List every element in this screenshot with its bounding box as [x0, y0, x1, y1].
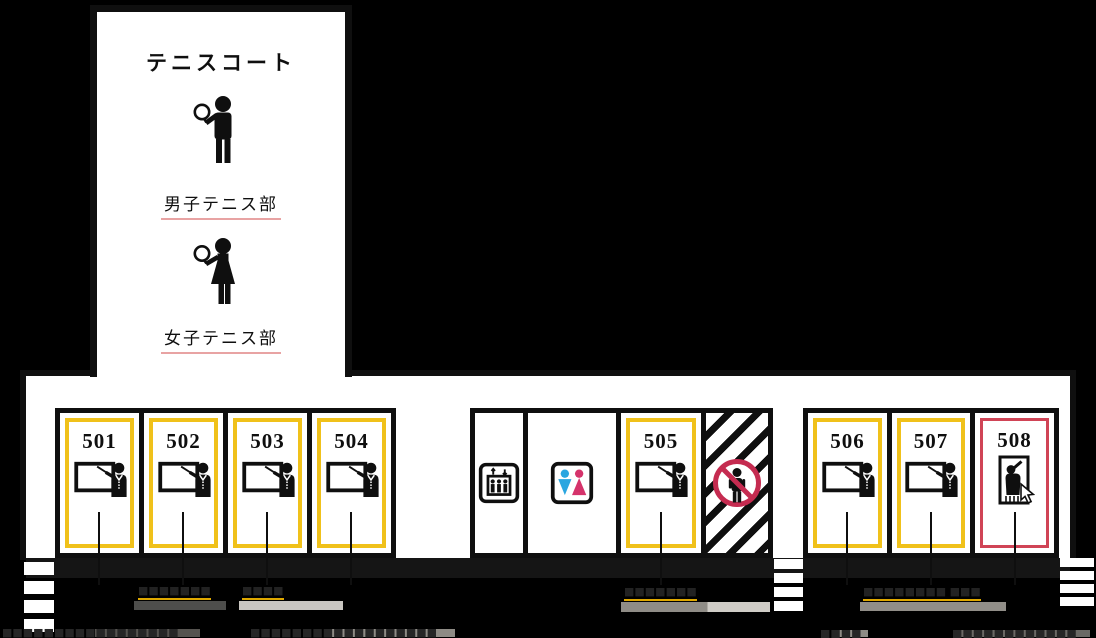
floor-map: テニスコート 男子テニス部 女子テニス部 501 502 503: [0, 0, 1096, 638]
tennis-court-area: テニスコート 男子テニス部 女子テニス部: [90, 5, 352, 377]
female-tennis-player-icon: [193, 237, 249, 317]
door-entry-icon: [995, 455, 1035, 509]
mens-tennis-club-label[interactable]: 男子テニス部: [161, 190, 281, 220]
link-label-under-505[interactable]: ■■■■■■■: [624, 586, 697, 601]
off-limits-hatched-area: [706, 413, 768, 553]
leader-line-508: [1014, 512, 1016, 585]
room-block-505: 505: [470, 408, 773, 558]
womens-tennis-club-label[interactable]: 女子テニス部: [161, 324, 281, 354]
room-number: 505: [644, 430, 679, 452]
leader-line-503: [266, 512, 268, 585]
tennis-court-title: テニスコート: [97, 47, 345, 77]
classroom-teacher-icon: [633, 459, 689, 497]
link-label-bottom-508[interactable]: ■■■■■■■■■■■■: [952, 628, 1077, 638]
classroom-teacher-icon: [903, 459, 959, 497]
classroom-teacher-icon: [820, 459, 876, 497]
classroom-teacher-icon: [72, 459, 128, 497]
room-number: 507: [914, 430, 949, 452]
link-label-bottom-504[interactable]: ■■■■■■■■■■■■■■■■■■: [250, 627, 437, 638]
classroom-teacher-icon: [156, 459, 212, 497]
label-shadow-bar: [134, 601, 226, 610]
label-shadow-bar: [621, 602, 770, 612]
restroom-icon: [550, 461, 594, 505]
leader-line-504: [350, 512, 352, 585]
link-label-under-503[interactable]: ■■■■: [242, 585, 284, 600]
room-number: 503: [250, 430, 285, 452]
label-shadow-bar: [239, 601, 343, 610]
leader-line-502: [182, 512, 184, 585]
room-number: 501: [82, 430, 117, 452]
leader-line-507: [930, 512, 932, 585]
room-number: 502: [166, 430, 201, 452]
elevator-icon: [478, 462, 520, 504]
link-label-bottom-501[interactable]: ■■■■■■■■■■■■■■■■■: [2, 627, 179, 638]
link-label-under-506-507[interactable]: ■■■■■■■■ ■■■: [863, 586, 981, 601]
male-tennis-player-icon: [193, 95, 249, 175]
leader-line-501: [98, 512, 100, 585]
elevator-cell[interactable]: [475, 413, 523, 553]
room-number: 506: [830, 430, 865, 452]
room-number: 504: [334, 430, 369, 452]
room-block-501-504: 501 502 503 504: [55, 408, 396, 558]
link-label-under-502[interactable]: ■■■■■■■: [138, 585, 211, 600]
restroom-cell[interactable]: [528, 413, 616, 553]
leader-line-506: [846, 512, 848, 585]
leader-line-505: [660, 512, 662, 585]
classroom-teacher-icon: [240, 459, 296, 497]
classroom-teacher-icon: [324, 459, 380, 497]
room-number: 508: [997, 429, 1032, 451]
link-label-bottom-506[interactable]: ■■■■: [820, 628, 862, 638]
no-entry-icon: [711, 457, 763, 509]
label-shadow-bar: [860, 602, 1006, 611]
